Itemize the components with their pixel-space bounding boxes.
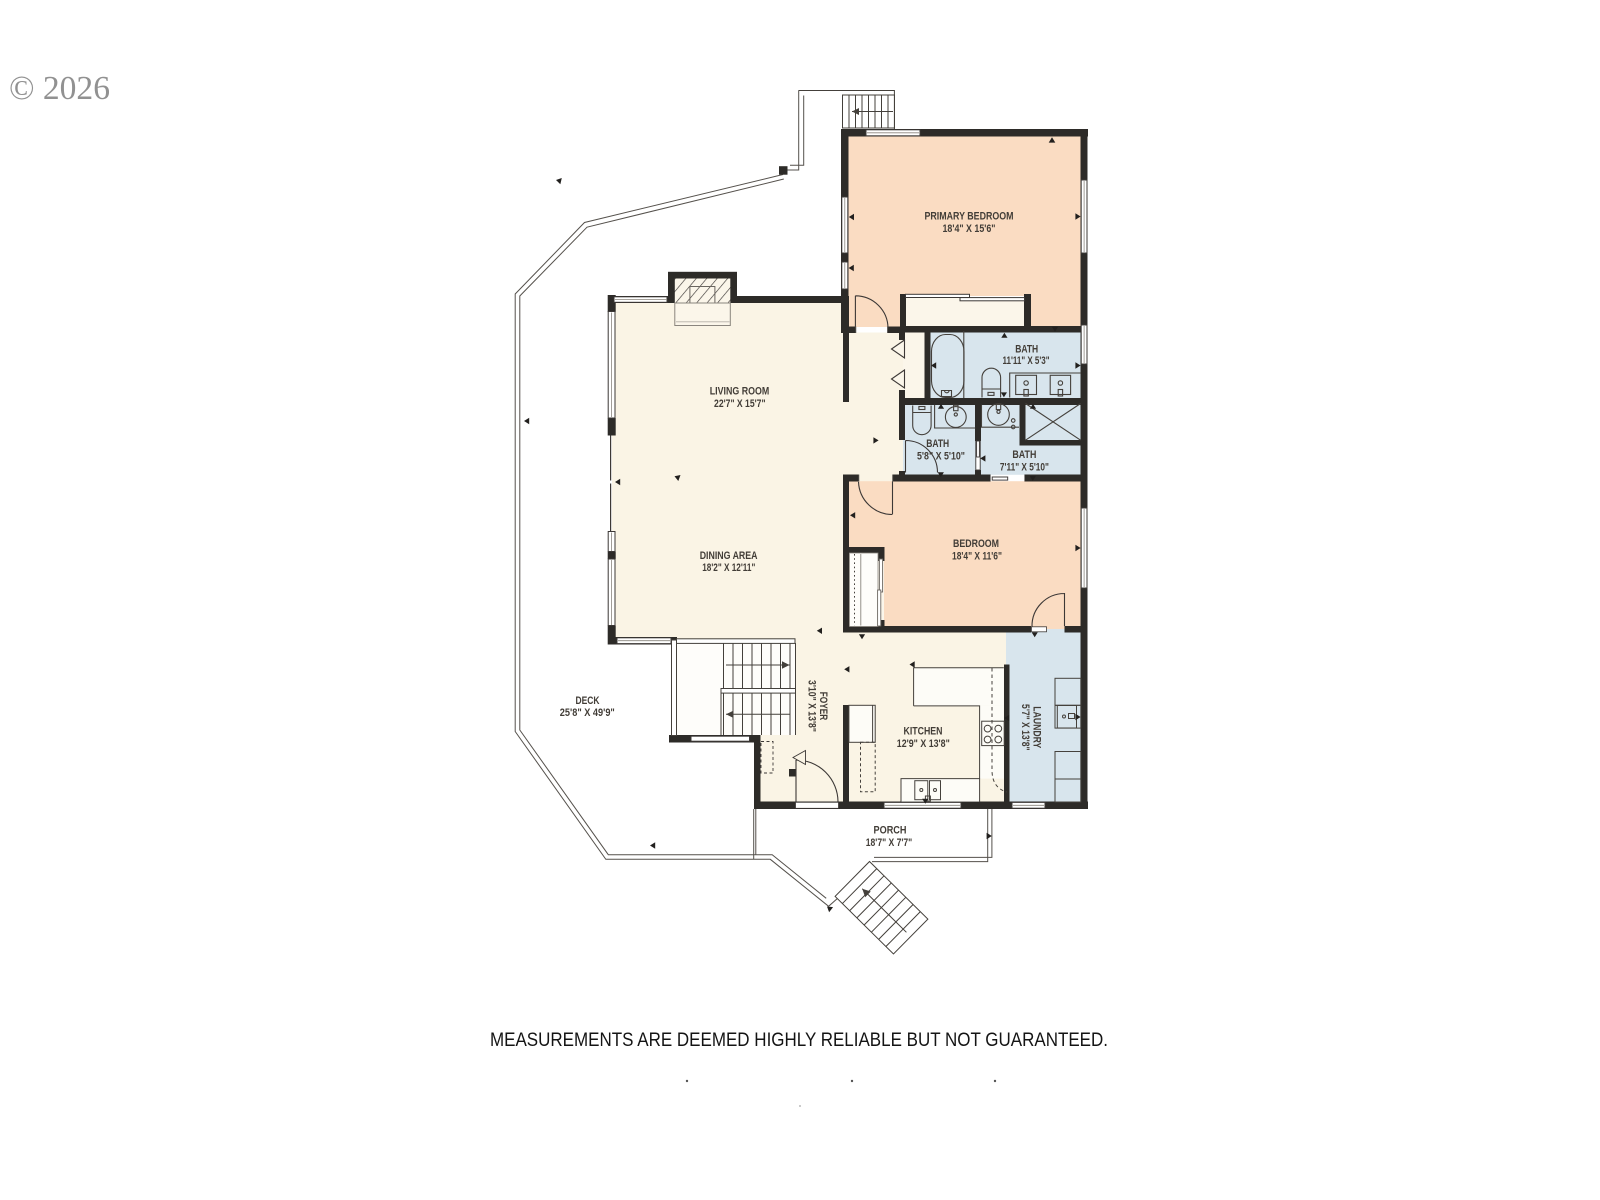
svg-text:12'9" X 13'8": 12'9" X 13'8" [897,738,950,750]
svg-text:18'7" X 7'7": 18'7" X 7'7" [866,837,913,849]
svg-text:LAUNDRY: LAUNDRY [1031,706,1043,749]
svg-text:MEASUREMENTS ARE DEEMED HIGHLY: MEASUREMENTS ARE DEEMED HIGHLY RELIABLE … [490,1029,1108,1051]
svg-text:BEDROOM: BEDROOM [953,538,999,550]
svg-text:BATH: BATH [1012,449,1036,461]
svg-text:PRIMARY BEDROOM: PRIMARY BEDROOM [925,211,1014,223]
svg-text:BATH: BATH [926,438,949,450]
svg-text:18'2" X 12'11": 18'2" X 12'11" [702,562,755,574]
svg-text:18'4" X 15'6": 18'4" X 15'6" [943,223,996,235]
svg-text:DINING AREA: DINING AREA [700,550,758,562]
svg-text:KITCHEN: KITCHEN [904,726,943,738]
svg-text:LIVING ROOM: LIVING ROOM [710,385,770,397]
svg-text:FOYER: FOYER [817,692,829,721]
svg-text:18'4" X 11'6": 18'4" X 11'6" [952,550,1002,562]
svg-text:25'8" X 49'9": 25'8" X 49'9" [560,707,615,719]
svg-text:5'8" X 5'10": 5'8" X 5'10" [917,451,965,463]
svg-text:DECK: DECK [576,695,600,707]
svg-text:5'7" X 13'8": 5'7" X 13'8" [1019,704,1031,751]
svg-text:BATH: BATH [1015,343,1038,355]
svg-text:7'11" X 5'10": 7'11" X 5'10" [1000,462,1049,474]
svg-text:11'11" X 5'3": 11'11" X 5'3" [1003,355,1050,367]
svg-text:PORCH: PORCH [874,825,907,837]
svg-text:© 2026: © 2026 [9,70,110,107]
svg-text:22'7" X 15'7": 22'7" X 15'7" [714,398,766,410]
svg-text:3'10" X 13'8": 3'10" X 13'8" [806,680,818,732]
